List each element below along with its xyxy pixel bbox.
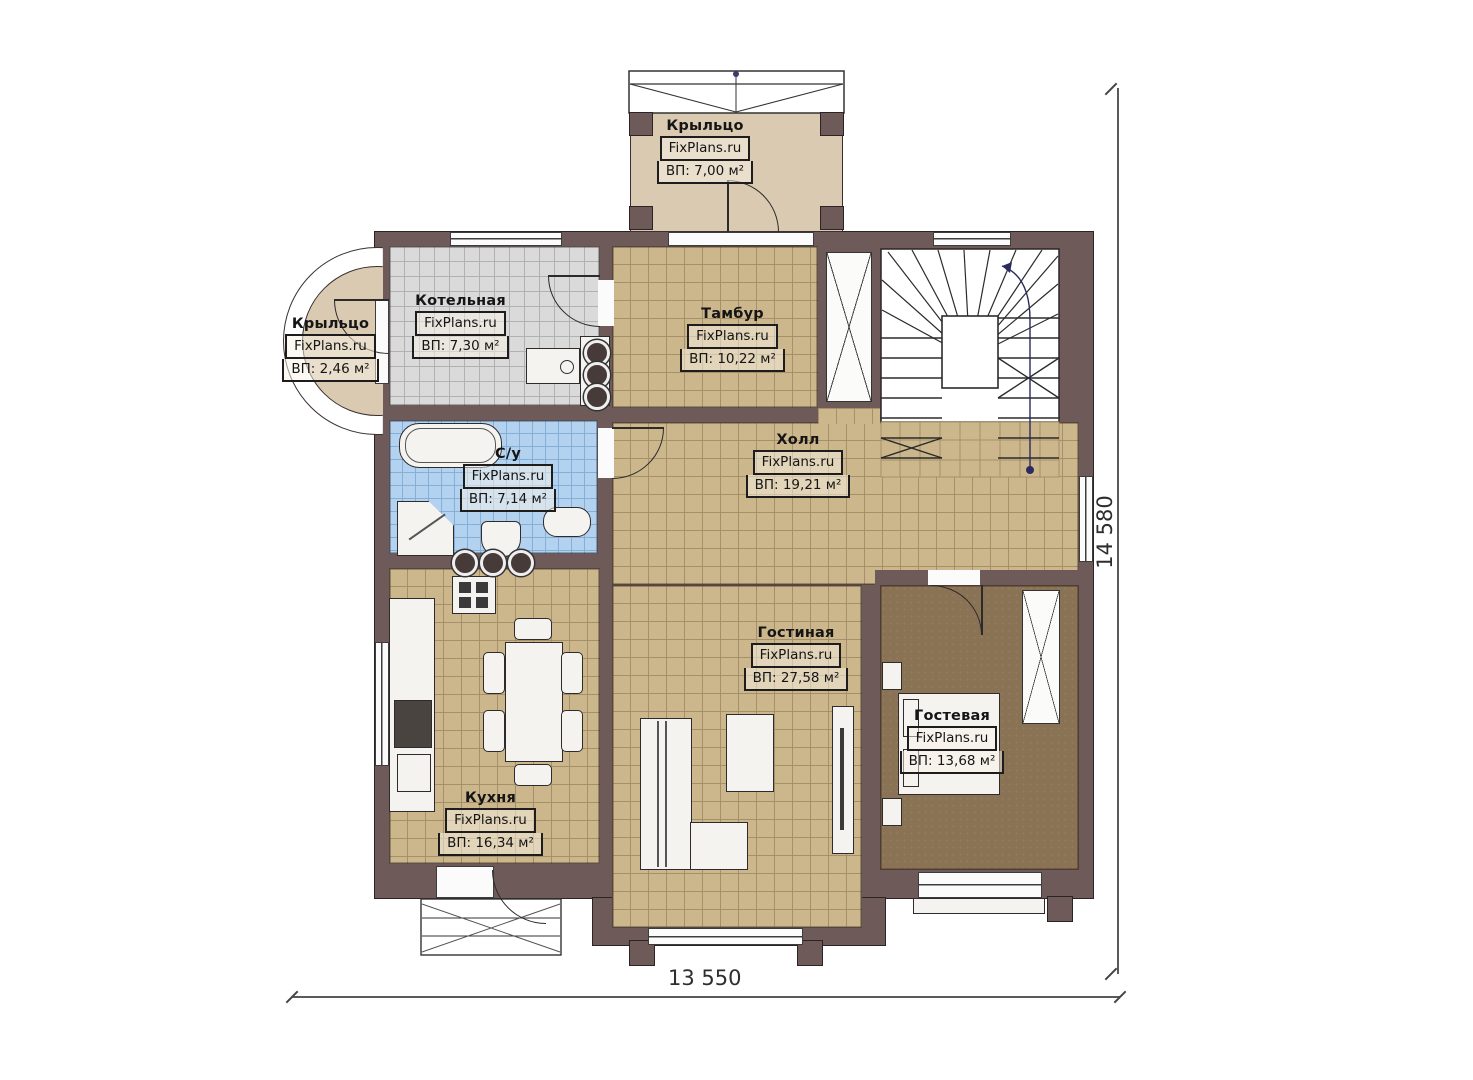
room-label-living: Гостиная FixPlans.ru ВП: 27,58 м² bbox=[722, 625, 870, 691]
room-brand: FixPlans.ru bbox=[415, 311, 506, 336]
room-brand: FixPlans.ru bbox=[660, 136, 751, 161]
dimension-tick bbox=[1105, 83, 1118, 96]
room-label-guest: Гостевая FixPlans.ru ВП: 13,68 м² bbox=[878, 708, 1026, 774]
floor-plan-page: { "plan": { "brand": "FixPlans.ru", "roo… bbox=[0, 0, 1473, 1080]
boiler-door-opening bbox=[598, 280, 614, 326]
room-area: ВП: 7,00 м² bbox=[657, 161, 753, 184]
stove-burner bbox=[480, 550, 506, 576]
dimension-height-line bbox=[1117, 88, 1119, 974]
oven-plate bbox=[476, 597, 488, 608]
chair bbox=[561, 652, 583, 694]
dimension-height-label: 14 580 bbox=[1093, 487, 1117, 577]
porch-post bbox=[629, 206, 653, 230]
room-brand: FixPlans.ru bbox=[751, 643, 842, 668]
stove-burner bbox=[508, 550, 534, 576]
oven-plate bbox=[476, 582, 488, 593]
room-area: ВП: 27,58 м² bbox=[744, 668, 849, 691]
room-name: Гостевая bbox=[914, 708, 990, 724]
nightstand bbox=[882, 798, 902, 826]
chair bbox=[514, 764, 552, 786]
room-name: Котельная bbox=[415, 293, 506, 309]
kitchen-appliance bbox=[394, 700, 432, 748]
entry-door-opening bbox=[668, 232, 814, 246]
window-guest-bottom bbox=[918, 872, 1042, 898]
window-stairs-top bbox=[933, 232, 1011, 246]
dining-table bbox=[505, 642, 563, 762]
room-name: Холл bbox=[776, 432, 819, 448]
sofa-seam bbox=[665, 721, 667, 867]
room-label-hall: Холл FixPlans.ru ВП: 19,21 м² bbox=[728, 432, 868, 498]
dimension-width-label: 13 550 bbox=[668, 966, 741, 990]
room-area: ВП: 2,46 м² bbox=[282, 359, 378, 382]
hall-closet bbox=[826, 252, 872, 402]
room-name: С/у bbox=[495, 446, 521, 462]
room-name: Кухня bbox=[465, 790, 516, 806]
room-area: ВП: 7,14 м² bbox=[460, 489, 556, 512]
room-brand: FixPlans.ru bbox=[907, 726, 998, 751]
room-brand: FixPlans.ru bbox=[463, 464, 554, 489]
nightstand bbox=[882, 662, 902, 690]
room-name: Тамбур bbox=[701, 306, 764, 322]
room-label-tambour: Тамбур FixPlans.ru ВП: 10,22 м² bbox=[660, 306, 805, 372]
room-name: Крыльцо bbox=[666, 118, 743, 134]
window-kitchen-left bbox=[375, 642, 389, 766]
window-boiler-top bbox=[450, 232, 562, 246]
window-hall-right bbox=[1079, 476, 1093, 562]
kitchen-sink bbox=[397, 754, 431, 792]
room-area: ВП: 10,22 м² bbox=[680, 349, 785, 372]
coffee-table bbox=[726, 714, 774, 792]
room-name: Гостиная bbox=[757, 625, 834, 641]
room-label-kitchen: Кухня FixPlans.ru ВП: 16,34 м² bbox=[418, 790, 563, 856]
tv bbox=[840, 728, 844, 830]
sofa-seam bbox=[657, 721, 659, 867]
oven-plate bbox=[459, 597, 471, 608]
porch-top-steps bbox=[628, 70, 845, 114]
chair bbox=[483, 652, 505, 694]
guest-wardrobe bbox=[1022, 590, 1060, 724]
tambour-hall-passage bbox=[818, 408, 880, 424]
dimension-tick bbox=[1105, 968, 1118, 981]
guest-door-opening bbox=[928, 570, 980, 585]
stairs bbox=[880, 248, 1060, 478]
stove-burner bbox=[452, 550, 478, 576]
window-living-bay bbox=[648, 928, 803, 945]
chair bbox=[483, 710, 505, 752]
chair bbox=[561, 710, 583, 752]
oven bbox=[452, 576, 496, 614]
oven-plate bbox=[459, 582, 471, 593]
room-area: ВП: 16,34 м² bbox=[438, 833, 543, 856]
porch-post bbox=[820, 112, 844, 136]
guest-window-ledge bbox=[913, 898, 1045, 914]
kitchen-exit-door-opening bbox=[436, 866, 494, 898]
porch-post bbox=[820, 206, 844, 230]
boiler-cylinder bbox=[584, 384, 610, 410]
room-brand: FixPlans.ru bbox=[285, 334, 376, 359]
room-brand: FixPlans.ru bbox=[687, 324, 778, 349]
room-label-porch-left: Крыльцо FixPlans.ru ВП: 2,46 м² bbox=[263, 316, 398, 382]
boiler-unit-dial bbox=[560, 360, 574, 374]
room-brand: FixPlans.ru bbox=[753, 450, 844, 475]
room-label-porch-top: Крыльцо FixPlans.ru ВП: 7,00 м² bbox=[640, 118, 770, 184]
room-name: Крыльцо bbox=[292, 316, 369, 332]
room-label-boiler: Котельная FixPlans.ru ВП: 7,30 м² bbox=[393, 293, 528, 359]
dimension-width-line bbox=[292, 996, 1120, 998]
room-area: ВП: 7,30 м² bbox=[412, 336, 508, 359]
room-area: ВП: 19,21 м² bbox=[746, 475, 851, 498]
sofa-chaise bbox=[690, 822, 748, 870]
chair bbox=[514, 618, 552, 640]
pilaster bbox=[1047, 896, 1073, 922]
room-label-bathroom: С/у FixPlans.ru ВП: 7,14 м² bbox=[443, 446, 573, 512]
room-brand: FixPlans.ru bbox=[445, 808, 536, 833]
room-area: ВП: 13,68 м² bbox=[900, 751, 1005, 774]
